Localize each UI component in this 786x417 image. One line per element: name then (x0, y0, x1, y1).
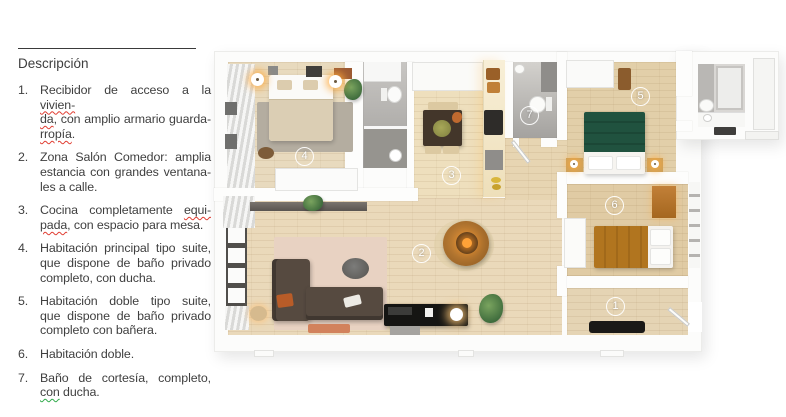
sink-icon (703, 114, 712, 122)
item-number: 4. (18, 241, 40, 285)
bed-room4 (269, 75, 333, 141)
item-line: Habitación doble. (40, 347, 211, 362)
kitchen-jar (486, 68, 500, 80)
description-item: 6.Habitación doble. (18, 347, 211, 362)
room-label-3: 3 (442, 166, 461, 185)
room-label-4: 4 (295, 147, 314, 166)
item-line: completo con bañera. (40, 323, 211, 338)
table-bowl (433, 120, 451, 137)
item-line: Baño de cortesía, completo, (40, 371, 211, 386)
item-number: 1. (18, 83, 40, 141)
ledge (745, 131, 779, 140)
item-line: Cocina completamente equi- (40, 203, 211, 218)
cushion-orange (276, 293, 294, 308)
dining-chair (428, 102, 458, 110)
item-number: 5. (18, 294, 40, 338)
wall (505, 62, 513, 138)
item-line: Habitación principal tipo suite, (40, 241, 211, 256)
room-label-7: 7 (520, 106, 539, 125)
wardrobe-room5 (566, 60, 614, 88)
wall (557, 266, 567, 296)
room-label-5: 5 (631, 87, 650, 106)
facade-tab (254, 350, 274, 357)
decor-room5 (618, 68, 631, 90)
item-line: con ducha. (40, 385, 211, 400)
wall (676, 51, 692, 96)
pillow (303, 80, 318, 90)
item-line: da, con amplio armario guarda- (40, 112, 211, 127)
open-door-room6 (564, 218, 586, 268)
dining-chair (425, 146, 441, 154)
item-line: Zona Salón Comedor: amplia (40, 150, 211, 165)
bed-room5 (584, 112, 645, 174)
description-item: 2.Zona Salón Comedor: ampliaestancia con… (18, 150, 211, 194)
pouf-living (250, 306, 267, 321)
shower-floor (364, 129, 407, 168)
item-line: completo, con ducha. (40, 271, 211, 286)
curtain-living-lower (225, 306, 249, 330)
coffee-table (342, 258, 369, 279)
room-label-1: 1 (606, 297, 625, 316)
item-number: 2. (18, 150, 40, 194)
wall (567, 276, 688, 288)
wardrobe-room4 (275, 168, 358, 191)
desk-room6 (652, 186, 676, 218)
pillow (588, 156, 613, 170)
kitchen-item (491, 177, 501, 183)
window-casement-icon (225, 102, 237, 115)
plant-icon (344, 79, 362, 100)
shower-stool (389, 149, 402, 162)
tv-icon (388, 307, 412, 315)
shower-enclosure (716, 66, 743, 110)
description-list: 1.Recibidor de acceso a la vivien-da, co… (18, 83, 211, 409)
window-right-wall (689, 182, 700, 268)
wall (557, 172, 567, 218)
toilet-icon (699, 99, 714, 112)
item-line: pada, con espacio para mesa. (40, 218, 211, 233)
pillow (650, 248, 671, 265)
item-number: 6. (18, 347, 40, 362)
dining-chair (443, 146, 459, 154)
flame-icon (462, 238, 472, 248)
item-line: rropía. (40, 127, 211, 142)
pouf-room4 (258, 147, 274, 159)
description-item: 5.Habitación doble tipo suite,que dispon… (18, 294, 211, 338)
window-living-room (226, 228, 247, 306)
shower-pan (541, 62, 557, 92)
cooktop-icon (484, 110, 503, 135)
blanket-mustard (594, 226, 648, 268)
wall (676, 121, 692, 131)
speaker-icon (425, 308, 433, 317)
curtain-living (223, 196, 255, 228)
doormat (589, 321, 645, 333)
bedside-lamp-icon (651, 160, 659, 168)
floor-vent (714, 127, 736, 135)
item-number: 7. (18, 371, 40, 400)
pillow (277, 80, 292, 90)
room-label-2: 2 (412, 244, 431, 263)
entrance-opening (688, 302, 702, 332)
wall (541, 138, 557, 147)
kitchen-upper-counter (412, 62, 483, 91)
blanket-green (584, 112, 645, 152)
sink-icon (514, 64, 525, 74)
item-line: estancia con grandes ventana- (40, 165, 211, 180)
vanity-ensuite (364, 62, 401, 82)
item-line: que dispone de baño privado (40, 309, 211, 324)
item-line: que dispone de baño privado (40, 256, 211, 271)
table-lamp-icon (450, 308, 463, 321)
bed-room6 (594, 226, 673, 268)
blanket (269, 99, 333, 141)
sofa-chaise (272, 259, 310, 321)
kitchen-item (492, 184, 501, 190)
gray-mat (390, 326, 420, 335)
plant-icon (303, 195, 323, 211)
wall-decor (306, 66, 322, 77)
kitchen-jar (487, 82, 500, 93)
toilet-icon (387, 86, 402, 103)
description-item: 4.Habitación principal tipo suite,que di… (18, 241, 211, 285)
oven-icon (485, 150, 503, 170)
item-line: Habitación doble tipo suite, (40, 294, 211, 309)
item-line: Recibidor de acceso a la vivien- (40, 83, 211, 112)
pillow (616, 156, 641, 170)
facade-tab (600, 350, 624, 357)
description-title: Descripción (18, 56, 89, 71)
item-line: les a calle. (40, 180, 211, 195)
bedside-lamp-icon (570, 160, 578, 168)
room-label-6: 6 (605, 196, 624, 215)
description-item: 7.Baño de cortesía, completo,con ducha. (18, 371, 211, 400)
page: Descripción 1.Recibidor de acceso a la v… (0, 0, 786, 417)
divider-line (18, 48, 196, 49)
pillow (650, 229, 671, 246)
rug-orange (308, 324, 350, 333)
toilet-tank (546, 97, 552, 111)
bedside-lamp-icon (251, 73, 264, 86)
wall-decor (268, 66, 278, 75)
description-item: 3.Cocina completamente equi-pada, con es… (18, 203, 211, 232)
terrace (753, 58, 775, 130)
window-casement-icon (225, 134, 237, 149)
facade-tab (458, 350, 474, 357)
bedside-lamp-icon (329, 75, 342, 88)
description-item: 1.Recibidor de acceso a la vivien-da, co… (18, 83, 211, 141)
item-number: 3. (18, 203, 40, 232)
plant-icon (479, 294, 503, 323)
